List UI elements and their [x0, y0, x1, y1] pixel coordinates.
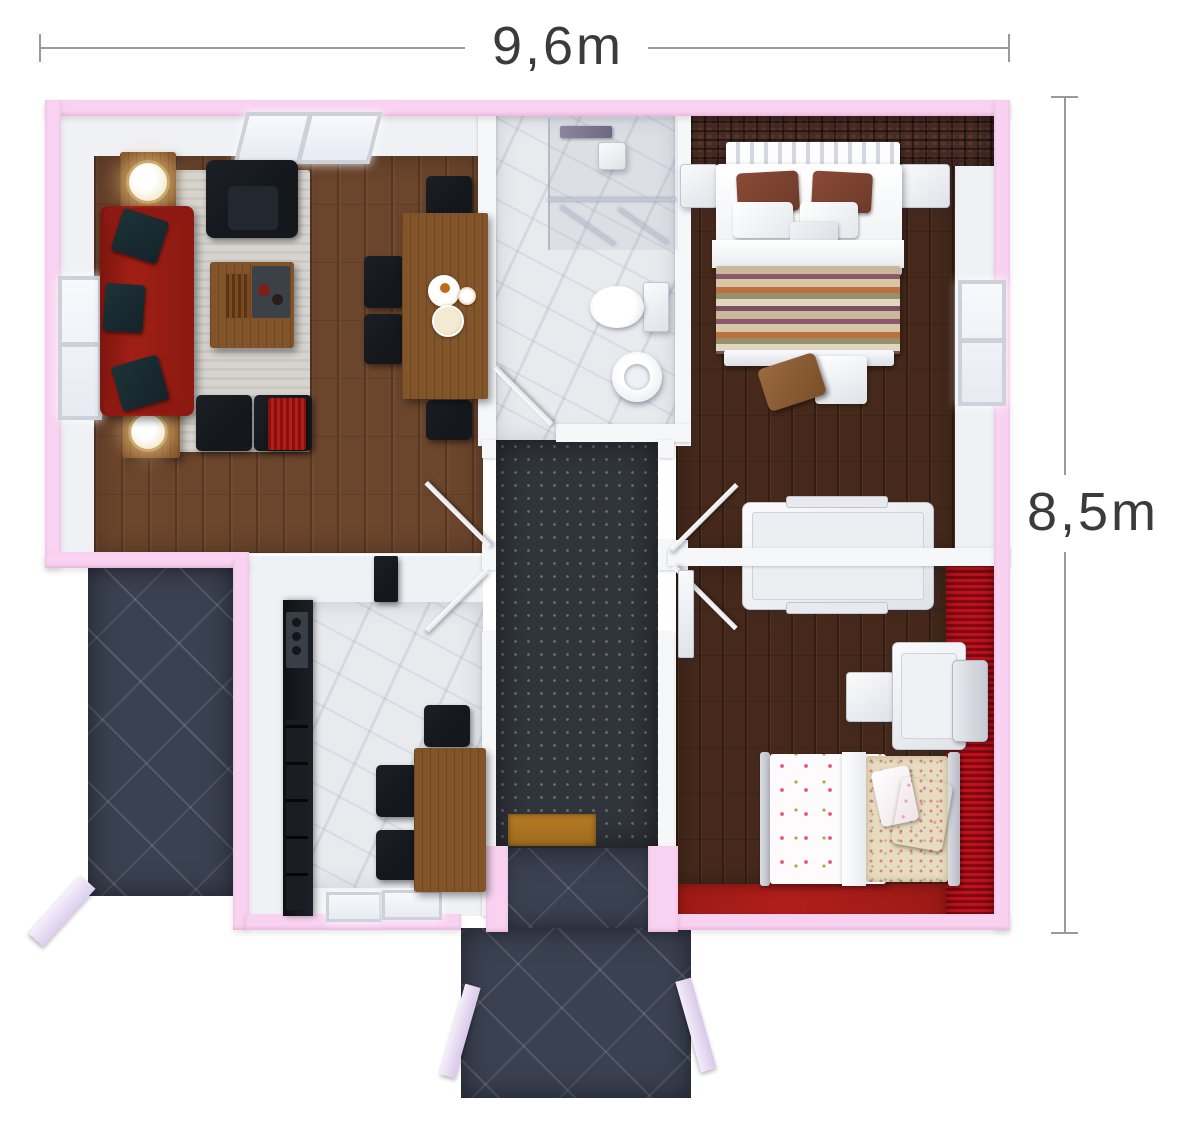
exterior-wall-right: [994, 100, 1010, 930]
coffee-table: [210, 262, 294, 348]
toilet-bowl: [590, 286, 644, 328]
dining-table: [402, 213, 488, 399]
kitchen-table: [414, 748, 486, 892]
dimension-right-tick-bottom: [1051, 932, 1078, 934]
dining-chair-top: [426, 176, 472, 216]
exterior-wall-top: [45, 100, 1010, 116]
kitchen-window-left: [326, 892, 382, 922]
skylight-mullion: [297, 116, 313, 160]
sink-basin: [624, 364, 650, 390]
kitchen-wall-cabinet: [374, 556, 398, 602]
master-window-mullion: [962, 338, 1002, 343]
wardrobe-door-top: [752, 512, 924, 552]
coffee-table-slats: [226, 274, 250, 318]
armchair-cushion: [228, 186, 278, 230]
kitchen-chair-top: [424, 705, 470, 747]
dimension-top-line-right: [648, 47, 1010, 49]
width-dimension-label: 9,6m: [458, 16, 658, 76]
kids-side-table: [846, 672, 894, 722]
dimension-top-line-left: [40, 47, 465, 49]
living-room-left-window: [58, 276, 102, 420]
entry-threshold-floor: [496, 848, 658, 930]
kitchen-stove: [286, 612, 308, 668]
kids-desk-top: [901, 653, 957, 739]
wardrobe-top-handle: [786, 496, 888, 508]
living-room-skylight-window: [234, 112, 383, 164]
terrace-floor: [88, 566, 233, 896]
dimension-right-tick-top: [1051, 96, 1078, 98]
stove-burner-2: [292, 632, 301, 641]
armchair: [206, 160, 298, 238]
exterior-wall-terrace-right: [233, 560, 249, 930]
floor-plan-canvas: 9,6m 8,5m: [0, 0, 1181, 1128]
kids-desk-chair: [952, 660, 988, 742]
porch-wall-left: [486, 846, 508, 932]
kids-bed-sheet-fold: [842, 752, 866, 886]
porch-wall-right: [648, 846, 678, 932]
dimension-top-tick-right: [1008, 34, 1010, 62]
shower-head-bar: [560, 126, 612, 138]
wardrobe-door-bottom: [752, 560, 924, 600]
ottoman-left: [196, 395, 252, 451]
nightstand-left: [680, 164, 718, 208]
bed-sheet-fold: [712, 240, 904, 268]
shower-shelf: [598, 142, 626, 170]
kitchen-window-right: [382, 890, 442, 920]
kitchen-left-wall-face: [249, 566, 287, 916]
kitchen-drawers: [286, 720, 308, 910]
dining-bowl: [432, 305, 464, 337]
stove-burner-3: [292, 646, 301, 655]
master-bedroom-window: [958, 280, 1006, 406]
sofa-pillow-middle: [102, 283, 145, 334]
dimension-right-line-top: [1064, 97, 1066, 475]
kids-bed-frame-right: [948, 752, 960, 886]
dining-plate-food: [440, 283, 450, 293]
table-lamp-top: [126, 160, 170, 204]
kids-bed-frame-left: [760, 752, 770, 886]
dining-chair-left-2: [364, 314, 404, 364]
dining-chair-left-1: [364, 256, 404, 308]
exterior-wall-kids-bottom: [676, 914, 1010, 930]
dimension-top-tick-left: [39, 34, 41, 62]
bathroom-sink: [612, 352, 662, 402]
dining-cup: [458, 287, 476, 305]
kitchen-chair-left-2: [376, 830, 418, 880]
left-window-mullion: [62, 342, 98, 347]
dimension-right-line-bottom: [1064, 552, 1066, 934]
hall-doormat: [508, 814, 596, 846]
wardrobe-bottom-handle: [786, 602, 888, 614]
terrace-ramp: [28, 875, 95, 946]
kitchen-chair-left-1: [376, 765, 418, 817]
shower-glass-panel: [548, 198, 676, 201]
bed-headboard: [726, 142, 900, 166]
height-dimension-label: 8,5m: [1005, 482, 1181, 542]
coffee-table-decor-red: [258, 284, 270, 296]
kids-door-panel: [678, 570, 694, 658]
coffee-table-decor-dark: [272, 294, 283, 305]
table-lamp-bottom: [128, 412, 168, 452]
exterior-wall-living-bottom: [45, 552, 249, 568]
bed-striped-blanket: [716, 266, 900, 354]
hallway-floor: [496, 440, 658, 848]
white-pillow-left: [733, 202, 793, 238]
hall-right-wall-upper-stub: [658, 440, 674, 458]
wall-master-kids: [668, 548, 1010, 566]
ottoman-red-throw: [268, 398, 306, 450]
hall-left-wall-mid-stub: [482, 543, 496, 570]
stove-burner-1: [292, 618, 301, 627]
dining-chair-bottom: [426, 400, 472, 440]
hall-left-wall-upper-stub: [482, 440, 496, 458]
kitchen-cabinet-run: [283, 600, 313, 916]
porch-floor: [461, 928, 691, 1098]
nightstand-right: [898, 164, 950, 208]
toilet-tank: [643, 282, 669, 332]
